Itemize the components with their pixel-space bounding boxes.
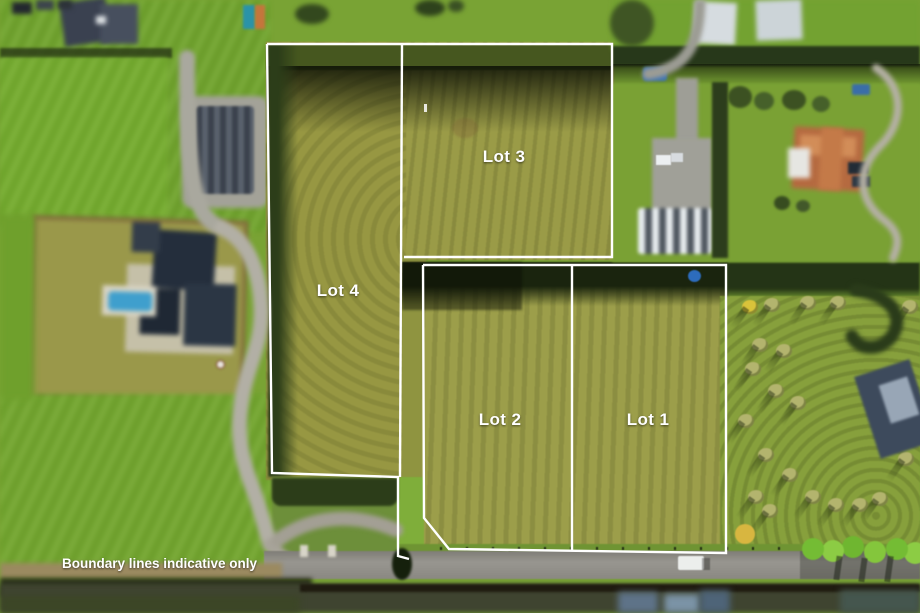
- dark-car: [848, 162, 868, 174]
- tree: [796, 200, 810, 212]
- orange-shed: [255, 5, 265, 29]
- driveway-entrance-flare: [300, 545, 308, 557]
- roadside-fence-posts: [440, 547, 920, 550]
- driveway-entrance-flare: [328, 545, 336, 557]
- lot4-west-hedge: [268, 45, 298, 477]
- mid-hedge-band-dark-west: [402, 262, 522, 310]
- vertical-hedge: [712, 82, 728, 258]
- lot-label-lot2: Lot 2: [479, 410, 522, 430]
- greenhouse: [638, 208, 712, 254]
- top-right-trees: [610, 0, 654, 46]
- top-hedge-shadow: [266, 66, 612, 132]
- yellow-tree: [735, 524, 755, 544]
- white-car: [656, 155, 671, 165]
- garden-top-hedge: [726, 262, 920, 300]
- aerial-photo: Lot 3 Lot 4 Lot 2 Lot 1 Boundary lines i…: [0, 0, 920, 613]
- tree: [754, 92, 774, 110]
- lot-label-lot4: Lot 4: [317, 281, 360, 301]
- modern-house-roof: [183, 283, 237, 346]
- south-dark-field: [0, 596, 300, 613]
- shrub: [415, 0, 445, 16]
- house-white-wing: [788, 148, 810, 178]
- lower-left-paddock: [0, 394, 272, 572]
- left-edge-grass: [0, 215, 34, 400]
- south-yard-blob: [700, 590, 730, 613]
- barn-roof: [196, 106, 254, 194]
- blue-object: [688, 270, 701, 282]
- modern-house-roof: [132, 222, 161, 253]
- boundary-disclaimer: Boundary lines indicative only: [62, 556, 257, 571]
- white-post: [424, 104, 427, 112]
- bright-tree-row: [802, 538, 824, 560]
- tree: [782, 90, 806, 110]
- top-left-field: [0, 58, 168, 216]
- shrub: [448, 0, 464, 12]
- shrub: [295, 4, 329, 24]
- driveway-stub: [676, 78, 698, 142]
- dark-car: [852, 176, 870, 187]
- tree: [812, 96, 830, 112]
- modern-house-roof: [152, 229, 217, 291]
- top-left-house-roof-2: [100, 4, 138, 44]
- roadside-ditch: [300, 584, 920, 592]
- bare-patch: [452, 118, 478, 138]
- white-shed: [693, 1, 737, 45]
- south-yard-blob: [664, 594, 700, 613]
- top-left-fence-line: [0, 48, 172, 58]
- white-shed: [755, 0, 802, 41]
- person-dot: [216, 360, 225, 369]
- tree: [774, 196, 790, 210]
- van-shadow: [702, 558, 710, 570]
- dark-roadside-tree: [392, 548, 412, 580]
- south-yard-blob: [618, 592, 658, 613]
- right-hedge-band: [612, 46, 920, 66]
- parked-vehicle: [12, 2, 32, 14]
- blue-car: [643, 67, 667, 81]
- white-van: [678, 556, 704, 570]
- swimming-pool: [108, 291, 152, 311]
- top-left-house-skylight: [96, 16, 106, 24]
- compound-lawn: [28, 215, 249, 405]
- tree: [728, 86, 752, 108]
- parked-vehicle: [36, 0, 54, 10]
- orange-roof-gable-2: [818, 127, 843, 190]
- parked-vehicle: [58, 0, 72, 9]
- notch-hedge: [272, 478, 398, 506]
- teal-shed: [243, 5, 255, 29]
- lot-label-lot3: Lot 3: [483, 147, 526, 167]
- lot-label-lot1: Lot 1: [627, 410, 670, 430]
- south-water: [840, 590, 920, 613]
- blue-car: [852, 84, 870, 95]
- white-car: [671, 153, 683, 162]
